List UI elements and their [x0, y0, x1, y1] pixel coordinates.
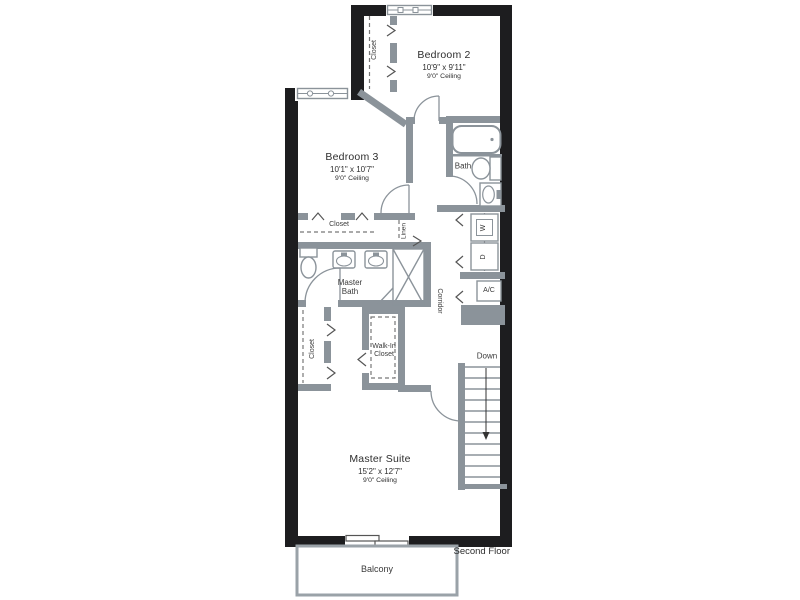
room-name: Bedroom 2 [417, 49, 470, 62]
master-sink-left-icon [333, 251, 355, 268]
master-suite-label: Master Suite 15'2" x 12'7" 9'0" Ceiling [349, 453, 410, 485]
bath-toilet-icon [472, 157, 501, 180]
down-label: Down [477, 351, 497, 360]
bedroom3-window-icon [295, 86, 351, 101]
bedroom2-window-icon [386, 3, 433, 17]
room-dimensions: 15'2" x 12'7" [349, 466, 410, 476]
master-bath-label: Master Bath [329, 278, 371, 296]
walk-in-closet-label: Walk-In Closet [363, 343, 405, 359]
room-dimensions: 10'1" x 10'7" [325, 164, 378, 174]
bedroom3-label: Bedroom 3 10'1" x 10'7" 9'0" Ceiling [325, 151, 378, 183]
down-arrow-icon [483, 368, 490, 440]
washer-label: W [480, 224, 488, 231]
dryer-label: D [480, 254, 488, 259]
master-suite-door-arc [431, 391, 461, 421]
bath-label: Bath [455, 161, 471, 170]
floor-plan-drawing [0, 0, 800, 600]
bedroom2-closet-label: Closet [371, 40, 379, 60]
bath-door-arc [449, 176, 477, 204]
balcony-label: Balcony [361, 564, 393, 574]
bedroom3-closet-label: Closet [329, 221, 349, 229]
bedroom3-door-arc [381, 185, 409, 213]
ac-label: A/C [483, 287, 495, 295]
corridor-label: Corridor [435, 288, 443, 313]
room-ceiling: 9'0" Ceiling [349, 477, 410, 485]
room-name: Bedroom 3 [325, 151, 378, 164]
room-dimensions: 10'9" x 9'11" [417, 62, 470, 72]
master-sink-right-icon [365, 251, 387, 268]
master-closet-label: Closet [309, 339, 317, 359]
room-name: Master Suite [349, 453, 410, 466]
bedroom2-label: Bedroom 2 10'9" x 9'11" 9'0" Ceiling [417, 49, 470, 81]
room-ceiling: 9'0" Ceiling [325, 175, 378, 183]
stairs-treads [465, 367, 500, 477]
bathtub-icon [453, 126, 501, 153]
floor-plan: Bedroom 2 10'9" x 9'11" 9'0" Ceiling Bed… [0, 0, 800, 600]
bedroom2-door-arc [414, 96, 439, 121]
linen-label: Linen [400, 223, 407, 239]
master-toilet-icon [300, 248, 317, 278]
floor-name-label: Second Floor [400, 546, 510, 557]
room-ceiling: 9'0" Ceiling [417, 73, 470, 81]
bath-sink-icon [480, 183, 501, 206]
